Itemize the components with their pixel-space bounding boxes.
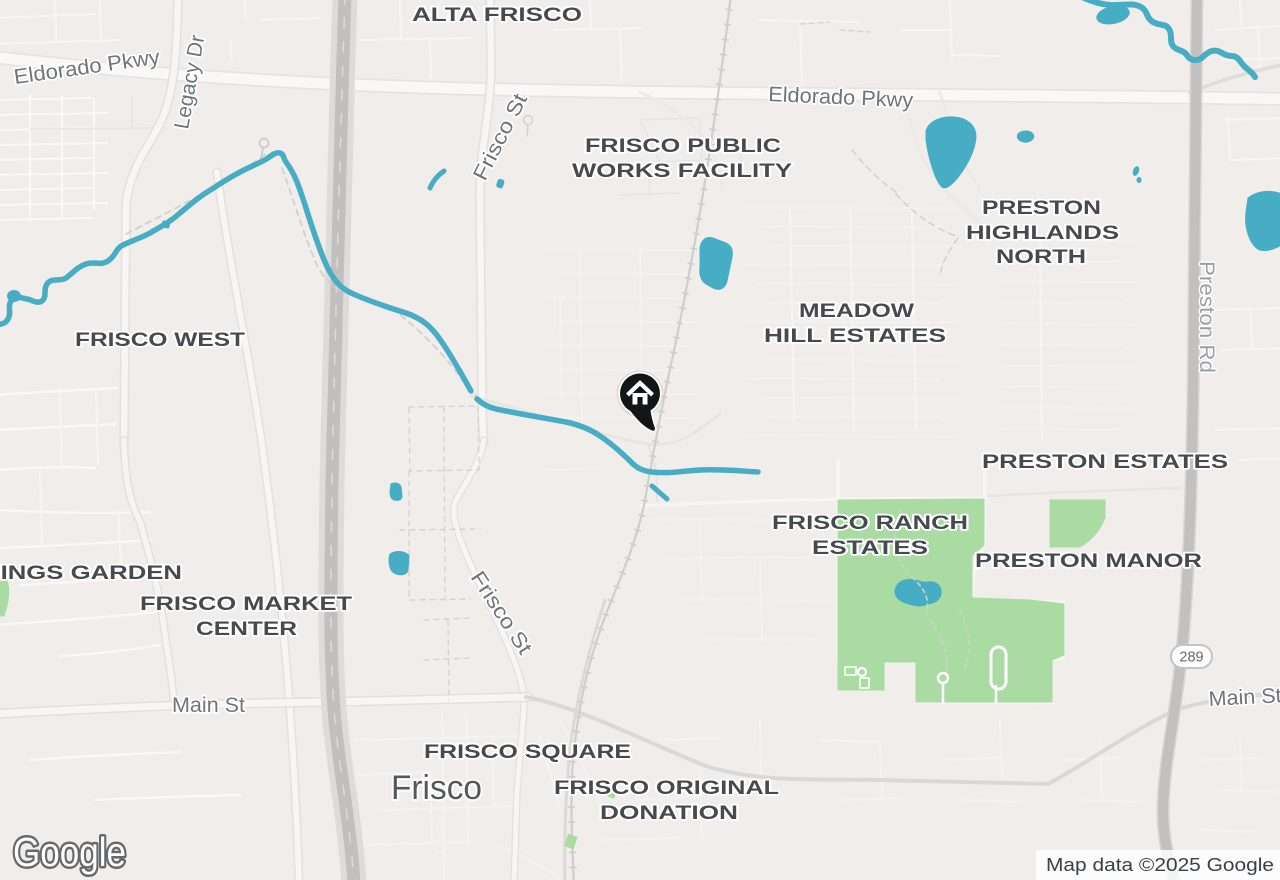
svg-text:Main St: Main St xyxy=(172,694,245,717)
svg-text:PRESTON: PRESTON xyxy=(982,198,1101,219)
svg-text:Preston Rd: Preston Rd xyxy=(1195,261,1218,373)
svg-text:KINGS GARDEN: KINGS GARDEN xyxy=(0,563,182,584)
svg-text:FRISCO PUBLIC: FRISCO PUBLIC xyxy=(585,136,781,157)
svg-text:PRESTON ESTATES: PRESTON ESTATES xyxy=(982,452,1228,473)
svg-text:NORTH: NORTH xyxy=(996,247,1086,268)
svg-text:FRISCO SQUARE: FRISCO SQUARE xyxy=(424,742,631,763)
svg-text:WORKS FACILITY: WORKS FACILITY xyxy=(572,161,792,182)
svg-text:FRISCO RANCH: FRISCO RANCH xyxy=(772,513,968,534)
svg-text:ALTA FRISCO: ALTA FRISCO xyxy=(412,5,582,26)
svg-text:289: 289 xyxy=(1179,650,1203,666)
svg-text:HILL ESTATES: HILL ESTATES xyxy=(764,326,946,347)
svg-text:Frisco: Frisco xyxy=(391,769,482,807)
svg-text:PRESTON MANOR: PRESTON MANOR xyxy=(975,551,1202,572)
svg-text:MEADOW: MEADOW xyxy=(799,301,914,322)
svg-text:ESTATES: ESTATES xyxy=(812,538,928,559)
svg-text:HIGHLANDS: HIGHLANDS xyxy=(966,223,1119,244)
svg-text:Main St: Main St xyxy=(1208,684,1280,711)
svg-text:DONATION: DONATION xyxy=(600,803,738,824)
svg-text:FRISCO MARKET: FRISCO MARKET xyxy=(140,594,353,615)
svg-text:FRISCO WEST: FRISCO WEST xyxy=(75,330,245,351)
svg-text:CENTER: CENTER xyxy=(196,619,297,640)
svg-text:Map data ©2025 Google: Map data ©2025 Google xyxy=(1046,855,1274,875)
svg-text:Google: Google xyxy=(13,829,126,875)
svg-text:FRISCO ORIGINAL: FRISCO ORIGINAL xyxy=(554,778,780,799)
